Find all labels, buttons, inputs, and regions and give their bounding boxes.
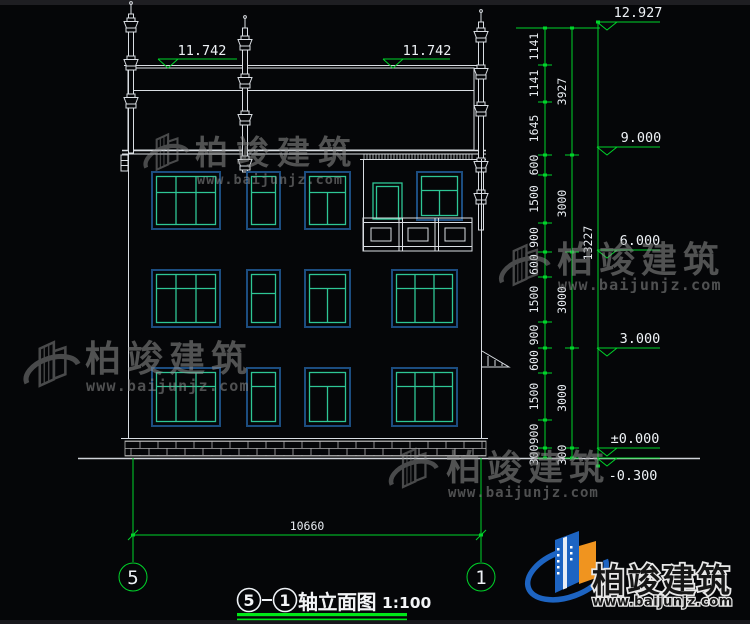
window <box>392 368 457 426</box>
dim-value: 1645 <box>527 115 541 143</box>
dim-value: 10660 <box>290 519 325 533</box>
window <box>152 270 220 327</box>
watermark: 柏竣建筑 www.baijunjz.com <box>146 133 359 188</box>
watermark-logo-icon <box>501 245 548 284</box>
dim-value: 3927 <box>555 78 569 106</box>
axis-bubble-left: 5 <box>119 563 147 591</box>
dim-value: 1500 <box>527 185 541 213</box>
dim-value: 3000 <box>555 190 569 218</box>
wall-corner-detail <box>121 155 128 171</box>
dim-value: 900 <box>527 227 541 248</box>
dim-chain-inner: 1141 1141 1645 600 1500 900 600 1500 900… <box>527 33 541 466</box>
level-value: 3.000 <box>620 331 661 347</box>
roof-level-marker-right: 11.742 <box>383 43 451 68</box>
dim-value: 600 <box>527 350 541 371</box>
window <box>305 368 350 426</box>
balcony-door <box>373 183 402 219</box>
level-value: 9.000 <box>621 130 662 146</box>
dim-value: 3000 <box>555 384 569 412</box>
title-axis-to: 1 <box>279 591 290 610</box>
dim-value: 1500 <box>527 286 541 314</box>
watermark-url: www.baijunjz.com <box>448 485 599 501</box>
axis-number: 5 <box>127 567 138 589</box>
title-underline-thick <box>237 613 407 616</box>
window <box>392 270 457 327</box>
brick-base <box>121 439 488 457</box>
level-value: ±0.000 <box>611 431 660 447</box>
watermark-brand: 柏竣建筑 <box>85 339 253 380</box>
title-underline-thin <box>237 619 407 621</box>
level-value: 11.742 <box>178 43 227 59</box>
watermark: 柏竣建筑 www.baijunjz.com <box>26 339 253 395</box>
dimension-bottom: 10660 5 1 <box>119 458 495 591</box>
drawing-title: 5 1 轴立面图 1:100 <box>237 589 432 621</box>
axis-number: 1 <box>475 567 486 589</box>
watermark-url: www.baijunjz.com <box>86 377 250 395</box>
footer-url-text: www.baijunjz.com <box>592 595 733 610</box>
watermark-brand: 柏竣建筑 <box>557 240 725 281</box>
roof-level-marker-left: 11.742 <box>158 43 237 68</box>
elevation-drawing: 11.742 11.742 1141 1141 1645 600 1500 90… <box>0 0 750 624</box>
title-scale: 1:100 <box>382 594 432 612</box>
level-value: 11.742 <box>403 43 452 59</box>
dim-value: 900 <box>527 325 541 346</box>
dim-value: 1141 <box>527 33 541 61</box>
dim-value: 1500 <box>527 383 541 411</box>
dim-value: 1141 <box>527 70 541 98</box>
level-value: -0.300 <box>609 468 658 484</box>
watermark-url: www.baijunjz.com <box>558 276 722 294</box>
image-bottom-edge <box>0 620 750 624</box>
side-canopy <box>482 351 509 367</box>
window <box>417 172 462 220</box>
watermark-brand: 柏竣建筑 <box>446 448 610 489</box>
title-axis-from: 5 <box>243 591 254 610</box>
title-text: 轴立面图 <box>298 590 376 614</box>
balcony-railing <box>363 218 472 251</box>
watermark-logo-icon <box>26 342 78 386</box>
watermark-brand: 柏竣建筑 <box>195 133 359 172</box>
dim-value: 600 <box>527 155 541 176</box>
dim-value: 900 <box>527 424 541 445</box>
cad-elevation-screenshot: 11.742 11.742 1141 1141 1645 600 1500 90… <box>0 0 750 624</box>
watermark-logo-icon <box>146 134 188 169</box>
window <box>305 270 350 327</box>
roof-pillar-left <box>124 2 138 153</box>
axis-bubble-right: 1 <box>467 563 495 591</box>
window <box>247 270 280 327</box>
watermark-url: www.baijunjz.com <box>197 172 343 188</box>
footer-logo: 柏竣建筑 www.baijunjz.com <box>521 531 733 610</box>
level-value: 12.927 <box>614 5 663 21</box>
